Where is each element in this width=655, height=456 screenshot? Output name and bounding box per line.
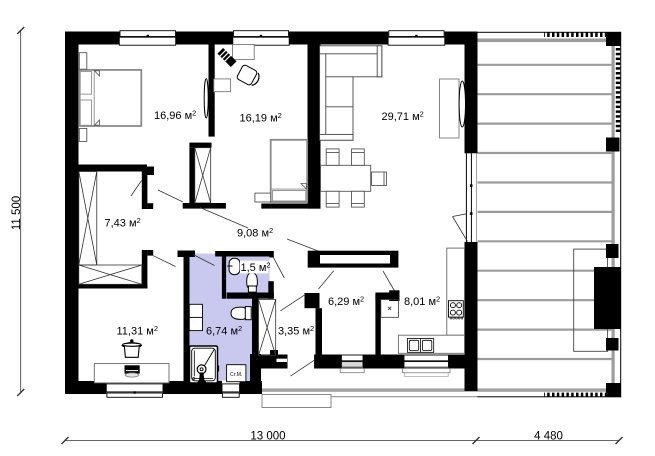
svg-text:6,74 м2: 6,74 м2 — [206, 324, 242, 338]
svg-text:13 000: 13 000 — [250, 431, 285, 443]
svg-text:7,43 м2: 7,43 м2 — [105, 216, 141, 230]
svg-text:11,31 м2: 11,31 м2 — [117, 324, 159, 338]
svg-text:16,19 м2: 16,19 м2 — [240, 111, 282, 125]
svg-text:1,5 м2: 1,5 м2 — [241, 261, 271, 275]
svg-text:16,96 м2: 16,96 м2 — [154, 109, 196, 123]
svg-text:9,08 м2: 9,08 м2 — [237, 226, 273, 240]
svg-text:Ст.М.: Ст.М. — [230, 372, 242, 378]
svg-text:8,01 м2: 8,01 м2 — [404, 295, 440, 309]
svg-text:6,29 м2: 6,29 м2 — [328, 295, 364, 309]
svg-text:3,35 м2: 3,35 м2 — [278, 324, 314, 338]
svg-text:29,71 м2: 29,71 м2 — [382, 110, 424, 124]
svg-text:4 480: 4 480 — [534, 431, 563, 443]
svg-text:11 500: 11 500 — [11, 196, 23, 230]
